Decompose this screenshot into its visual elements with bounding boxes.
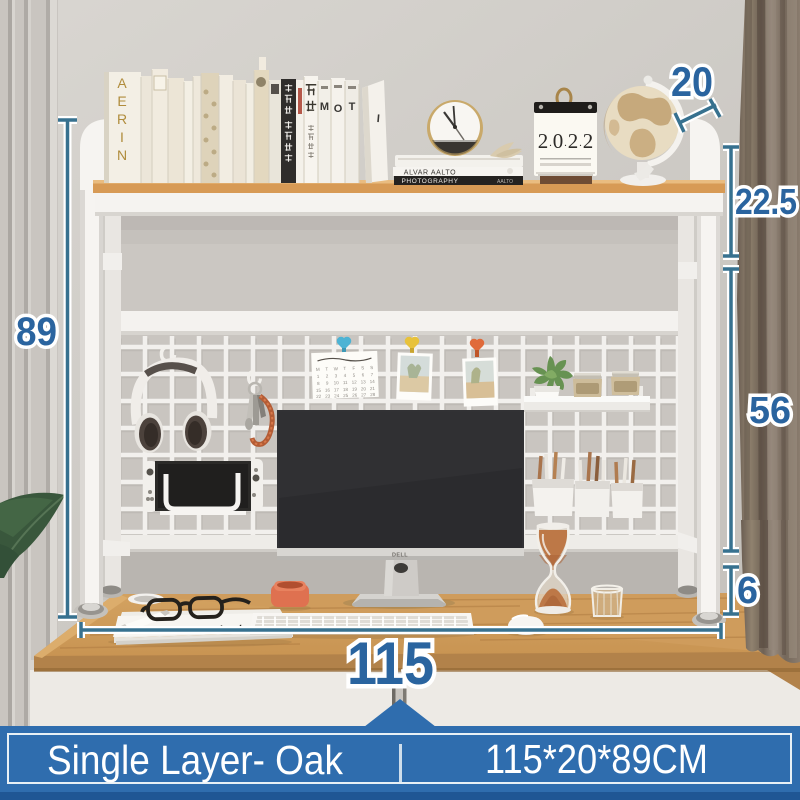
svg-text:DELL: DELL: [392, 553, 408, 559]
svg-text:14: 14: [370, 379, 376, 384]
svg-text:25: 25: [343, 393, 349, 398]
svg-text:6: 6: [737, 570, 758, 612]
svg-text:115*20*89CM: 115*20*89CM: [485, 736, 708, 782]
svg-text:23: 23: [325, 394, 331, 399]
svg-text:M: M: [316, 367, 320, 372]
svg-text:PHOTOGRAPHY: PHOTOGRAPHY: [401, 178, 458, 185]
svg-text:13: 13: [361, 379, 367, 384]
svg-text:26: 26: [352, 393, 358, 398]
svg-text:T: T: [343, 366, 346, 371]
svg-text:S: S: [361, 365, 364, 370]
svg-text:AALTO: AALTO: [497, 179, 513, 185]
svg-text:11: 11: [343, 380, 348, 385]
svg-text:89: 89: [16, 310, 57, 354]
svg-text:56: 56: [749, 390, 791, 432]
svg-text:20: 20: [671, 58, 713, 105]
svg-text:AERIN: AERIN: [117, 75, 127, 163]
svg-text:T: T: [349, 101, 356, 113]
svg-text:19: 19: [352, 387, 358, 392]
svg-text:24: 24: [334, 393, 340, 398]
svg-text:10: 10: [334, 380, 340, 385]
svg-text:20: 20: [361, 386, 367, 391]
svg-text:M: M: [320, 101, 329, 113]
svg-text:21: 21: [370, 386, 376, 391]
svg-text:ALVAR AALTO: ALVAR AALTO: [404, 170, 456, 177]
svg-text:T: T: [325, 367, 328, 372]
svg-text:115: 115: [347, 630, 434, 697]
svg-text:Single Layer- Oak: Single Layer- Oak: [47, 737, 343, 783]
svg-text:15: 15: [316, 388, 322, 393]
svg-text:27: 27: [361, 392, 367, 397]
svg-text:17: 17: [334, 387, 340, 392]
svg-text:16: 16: [325, 388, 331, 393]
svg-text:28: 28: [370, 392, 376, 397]
svg-text:12: 12: [352, 380, 358, 385]
svg-text:O: O: [334, 103, 343, 115]
svg-text:S: S: [370, 365, 373, 370]
svg-text:18: 18: [343, 387, 349, 392]
svg-text:22.5: 22.5: [735, 181, 797, 222]
svg-text:F: F: [352, 366, 355, 371]
svg-text:22: 22: [316, 394, 322, 399]
